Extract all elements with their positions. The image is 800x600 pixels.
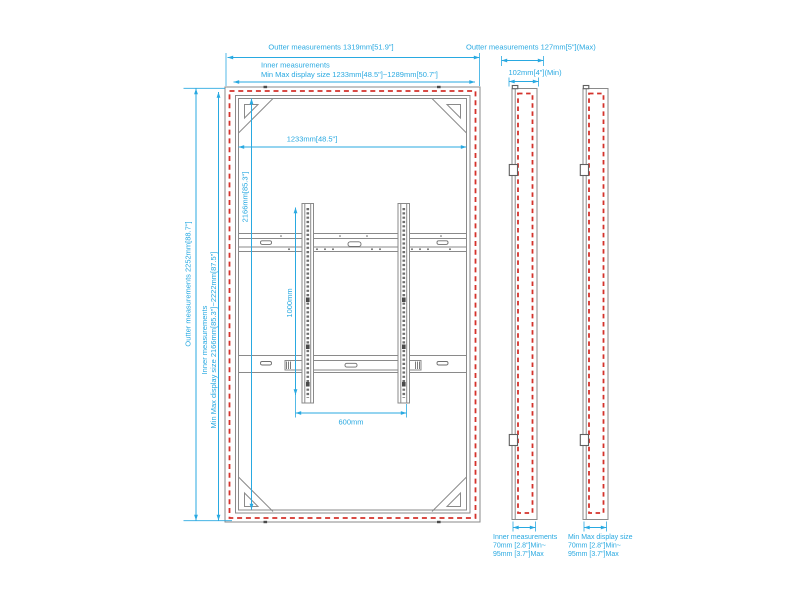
dim-outer-width-label: Outter measurements 1319mm[51.9"] — [268, 43, 393, 52]
dim-side-depth-max-label: Outter measurements 127mm[5"](Max) — [466, 43, 596, 52]
top-tab — [512, 86, 518, 89]
diagram-canvas: Outter measurements 1319mm[51.9"] Inner … — [0, 0, 800, 600]
front-view — [225, 86, 480, 523]
outer-frame — [225, 87, 480, 522]
dim-display-width: 1233mm[48.5"] — [239, 135, 467, 149]
inner-frame-outer-line — [236, 96, 471, 514]
dim-display-width-label: 1233mm[48.5"] — [287, 135, 338, 144]
corner-bracket-bottom-left — [239, 477, 274, 512]
dim-inner-width: Inner measurements Min Max display size … — [234, 61, 476, 84]
mount-spec-diagram: Outter measurements 1319mm[51.9"] Inner … — [0, 0, 800, 600]
rail-slot-right — [437, 362, 448, 366]
dim-display-height-label: 2166mm[85.3"] — [241, 172, 250, 223]
dim-sv2-max: 95mm [3.7"]Max — [568, 551, 619, 558]
mount-clip-upper — [580, 165, 588, 176]
rail-center-oval — [348, 242, 361, 247]
dim-inner-height: Inner measurements Min Max display size … — [200, 92, 220, 521]
dim-sv1-title: Inner measurements — [493, 534, 558, 541]
dim-sv1-max: 95mm [3.7"]Max — [493, 551, 544, 558]
dim-vesa-height-label: 1000mm — [285, 288, 294, 317]
display-outline-dashed — [230, 91, 476, 518]
dim-outer-height-label: Outter measurements 2252mm[88.7"] — [184, 221, 193, 346]
side-view-1 — [509, 86, 537, 520]
dim-display-height: 2166mm[85.3"] — [241, 99, 254, 510]
corner-bracket-bottom-right — [432, 477, 467, 512]
dim-sv2-title: Min Max display size — [568, 534, 633, 541]
mount-clip-upper — [509, 165, 517, 176]
rail-slot-right — [437, 241, 448, 245]
mount-clip-lower — [509, 435, 517, 446]
display-outline-dashed — [589, 94, 604, 514]
side-view-2 — [580, 86, 608, 520]
dim-side-depth-max: Outter measurements 127mm[5"](Max) — [466, 43, 596, 67]
inner-frame-inner-line — [239, 99, 467, 511]
dim-sv1-min: 70mm [2.8"]Min~ — [493, 543, 546, 550]
dim-inner-width-title: Inner measurements — [261, 61, 330, 70]
dim-side-depth-min-label: 102mm[4"](Min) — [509, 68, 563, 77]
mount-clip-lower — [580, 435, 588, 446]
dim-inner-height-label: Min Max display size 2166mm[85.3"]~2222m… — [209, 252, 218, 429]
vesa-rail-right — [398, 204, 410, 404]
vesa-rail-left — [302, 204, 314, 404]
top-tab — [583, 86, 589, 89]
dim-sv2-display-depth: Min Max display size 70mm [2.8"]Min~ 95m… — [568, 522, 633, 559]
rail-slot-left — [261, 241, 272, 245]
dim-sv2-min: 70mm [2.8"]Min~ — [568, 543, 621, 550]
dim-vesa-width-label: 600mm — [338, 418, 363, 427]
corner-bracket-top-right — [432, 99, 467, 134]
dim-inner-height-title: Inner measurements — [200, 305, 209, 374]
upper-wall-rail — [239, 234, 467, 252]
dim-inner-width-label: Min Max display size 1233mm[48.5"]~1289m… — [261, 70, 438, 79]
lower-wall-rail — [239, 356, 467, 373]
dim-sv1-inner-depth: Inner measurements 70mm [2.8"]Min~ 95mm … — [493, 522, 558, 559]
display-outline-dashed — [518, 94, 533, 514]
corner-bracket-top-left — [239, 99, 274, 134]
rail-slot-left — [261, 362, 272, 366]
dim-side-depth-min: 102mm[4"](Min) — [509, 68, 563, 87]
